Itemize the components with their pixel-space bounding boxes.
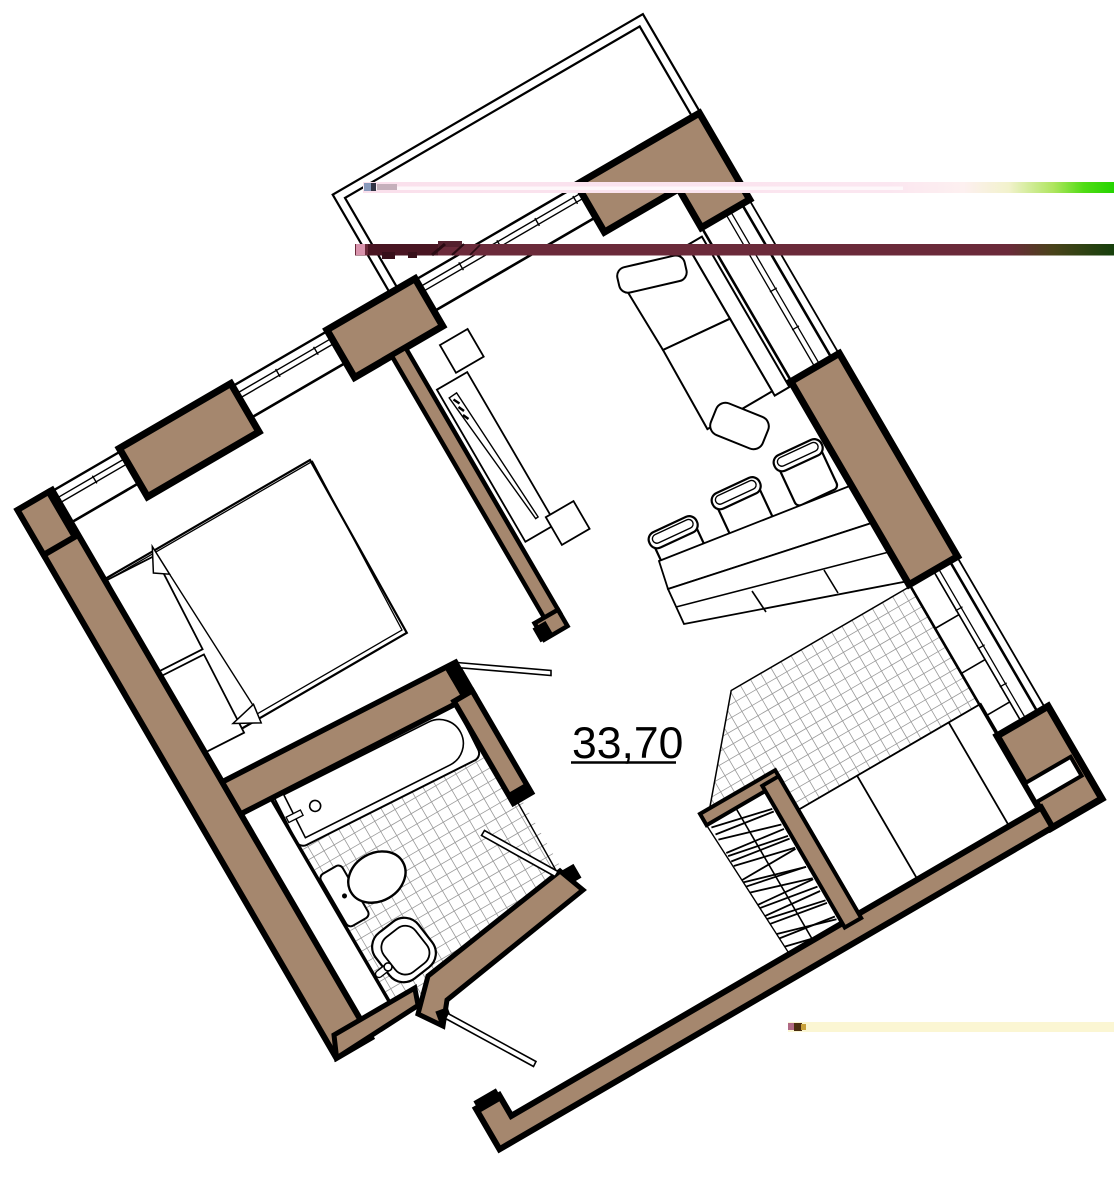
svg-text:33,70: 33,70 <box>572 719 683 768</box>
